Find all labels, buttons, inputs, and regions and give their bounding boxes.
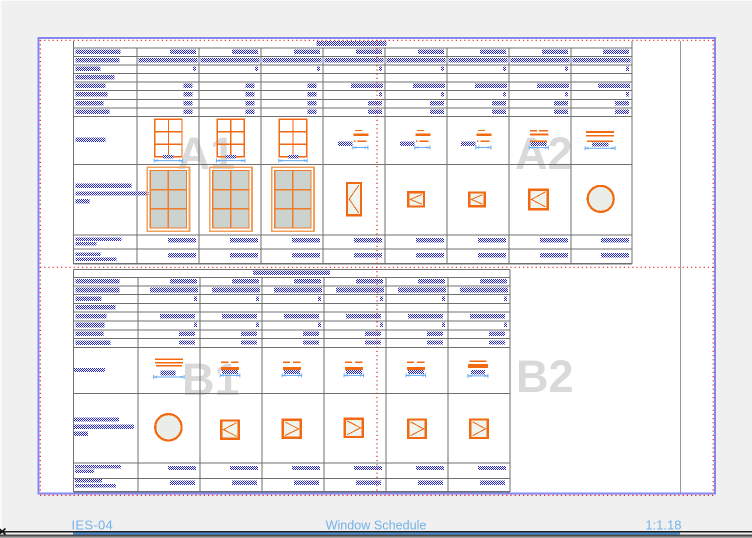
svg-text:1:1.18: 1:1.18: [645, 517, 681, 532]
svg-text:Window Schedule: Window Schedule: [326, 518, 427, 532]
svg-text:B2: B2: [516, 351, 574, 402]
svg-text:A2: A2: [515, 128, 573, 179]
svg-text:B1: B1: [182, 354, 240, 405]
svg-text:IES-04: IES-04: [72, 517, 114, 532]
